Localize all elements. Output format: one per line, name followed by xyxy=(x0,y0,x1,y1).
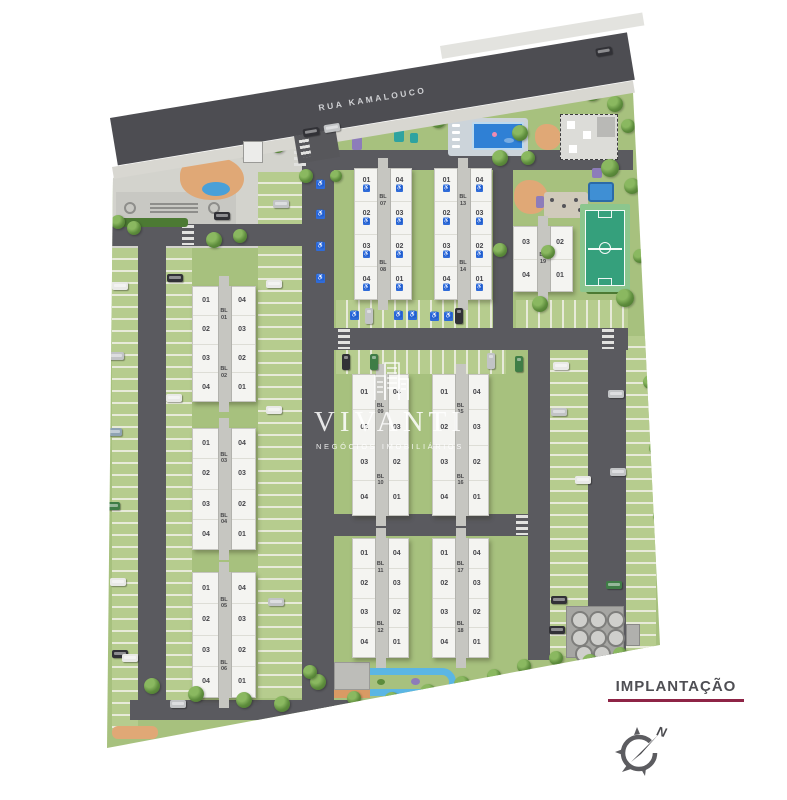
block-label: BL 10 xyxy=(373,474,389,488)
unit-number: 02 xyxy=(556,239,564,246)
car-icon xyxy=(268,598,284,606)
unit-number: 01 xyxy=(556,272,564,279)
tree-icon xyxy=(644,292,660,308)
car-icon xyxy=(108,352,124,360)
car-icon xyxy=(266,280,282,288)
tree-icon xyxy=(144,678,160,694)
unit-number: 03 xyxy=(202,647,210,654)
unit-number: 04 xyxy=(238,440,246,447)
building-entry-path xyxy=(456,658,466,668)
unit-number: 03 xyxy=(396,210,404,217)
block-label: BL 14 xyxy=(455,260,471,274)
building-block: 0102030404030201BL 11BL 12 xyxy=(352,538,409,658)
tree-icon xyxy=(274,696,290,712)
unit-number: 02 xyxy=(202,470,210,477)
building-entry-path xyxy=(376,516,386,526)
building-block: 01♿02♿03♿04♿04♿03♿02♿01♿BL 13BL 14 xyxy=(434,168,492,300)
unit-number: 02 xyxy=(440,424,448,431)
car-windshield xyxy=(114,284,126,287)
building-entry-path xyxy=(219,562,229,572)
car-icon xyxy=(487,353,495,369)
unit-number: 01 xyxy=(473,639,481,646)
unit-cell: 01♿ xyxy=(468,267,491,299)
unit-number: 02 xyxy=(238,501,246,508)
unit-number: 02 xyxy=(363,210,371,217)
building-strip-right: 04030201 xyxy=(228,428,256,550)
unit-number: 02 xyxy=(360,424,368,431)
unit-number: 03 xyxy=(473,580,481,587)
tree-icon xyxy=(621,119,635,133)
car-windshield xyxy=(110,354,122,357)
car-icon xyxy=(170,700,186,708)
block-label: BL 08 xyxy=(375,260,391,274)
tree-icon xyxy=(233,229,247,243)
tree-icon xyxy=(420,684,436,700)
tree-icon xyxy=(188,686,204,702)
accessibility-icon: ♿ xyxy=(476,284,483,291)
car-windshield xyxy=(112,580,124,583)
unit-number: 03 xyxy=(440,609,448,616)
building-block: 03040201BL 19 xyxy=(513,226,573,292)
unit-cell: 03♿ xyxy=(468,202,491,235)
unit-number: 03 xyxy=(238,470,246,477)
unit-number: 03 xyxy=(393,424,401,431)
unit-number: 04 xyxy=(238,297,246,304)
unit-cell: 01♿ xyxy=(388,267,411,299)
tree-icon xyxy=(521,151,535,165)
unit-cell: 04♿ xyxy=(388,169,411,202)
unit-cell: 02♿ xyxy=(468,235,491,268)
building-entry-path xyxy=(219,698,229,708)
building-entry-path xyxy=(219,418,229,428)
unit-number: 04 xyxy=(360,639,368,646)
building-block: 0102030404030201BL 03BL 04 xyxy=(192,428,256,550)
unit-number: 04 xyxy=(473,389,481,396)
unit-number: 04 xyxy=(202,531,210,538)
building-block: 01♿02♿03♿04♿04♿03♿02♿01♿BL 07BL 08 xyxy=(354,168,412,300)
building-strip-left: 01020304 xyxy=(192,428,220,550)
legend: IMPLANTAÇÃO xyxy=(608,678,744,702)
block-label: BL 13 xyxy=(455,194,471,208)
unit-number: 01 xyxy=(440,550,448,557)
building-strip-left: 01020304 xyxy=(432,538,457,658)
tree-icon xyxy=(532,296,548,312)
compass-icon: N xyxy=(612,722,670,780)
unit-number: 01 xyxy=(363,177,371,184)
accessible-parking-icon: ♿ xyxy=(350,311,359,320)
car-windshield xyxy=(555,364,567,367)
car-windshield xyxy=(344,356,348,359)
unit-cell: 02 xyxy=(229,345,255,374)
building-strip-right: 04030201 xyxy=(228,572,256,698)
car-icon xyxy=(266,406,282,414)
car-icon xyxy=(104,502,120,510)
unit-number: 04 xyxy=(202,678,210,685)
unit-number: 01 xyxy=(396,276,404,283)
tree-icon xyxy=(303,665,317,679)
block-label: BL 17 xyxy=(453,561,469,575)
building-core xyxy=(375,538,389,658)
tree-icon xyxy=(582,654,598,670)
accessibility-icon: ♿ xyxy=(363,284,370,291)
unit-number: 02 xyxy=(473,609,481,616)
unit-number: 01 xyxy=(360,389,368,396)
block-label: BL 16 xyxy=(453,474,469,488)
unit-cell: 03 xyxy=(466,569,489,599)
building-entry-path xyxy=(378,300,388,310)
car-icon xyxy=(606,581,622,589)
accessibility-icon: ♿ xyxy=(443,251,450,258)
car-windshield xyxy=(372,356,376,359)
tree-icon xyxy=(127,221,141,235)
unit-cell: 01 xyxy=(466,628,489,657)
car-windshield xyxy=(108,430,120,433)
unit-number: 01 xyxy=(476,276,484,283)
tree-icon xyxy=(487,669,501,683)
unit-cell: 03 xyxy=(229,604,255,635)
unit-number: 01 xyxy=(202,297,210,304)
car-icon xyxy=(365,308,373,324)
unit-number: 02 xyxy=(238,355,246,362)
accessibility-icon: ♿ xyxy=(396,218,403,225)
unit-cell: 02 xyxy=(229,636,255,667)
tree-icon xyxy=(640,214,656,230)
car-windshield xyxy=(612,470,624,473)
tree-icon xyxy=(111,215,125,229)
tree-icon xyxy=(454,676,470,692)
unit-number: 04 xyxy=(522,272,530,279)
unit-cell: 04 xyxy=(386,375,409,410)
car-icon xyxy=(166,394,182,402)
unit-cell: 03 xyxy=(466,410,489,445)
tree-icon xyxy=(512,125,528,141)
tree-icon xyxy=(549,651,563,665)
car-icon xyxy=(455,308,463,324)
tree-icon xyxy=(492,150,508,166)
building-entry-path xyxy=(376,658,386,668)
accessibility-icon: ♿ xyxy=(396,185,403,192)
accessibility-icon: ♿ xyxy=(396,284,403,291)
tree-icon xyxy=(616,289,634,307)
block-label: BL 12 xyxy=(373,621,389,635)
unit-number: 03 xyxy=(443,243,451,250)
tree-icon xyxy=(649,441,663,455)
car-windshield xyxy=(553,598,565,601)
building-strip-right: 04030201 xyxy=(228,286,256,402)
unit-number: 03 xyxy=(473,424,481,431)
gatehouse xyxy=(243,141,263,163)
unit-number: 03 xyxy=(360,459,368,466)
accessibility-icon: ♿ xyxy=(363,251,370,258)
accessibility-icon: ♿ xyxy=(443,185,450,192)
car-icon xyxy=(112,282,128,290)
accessibility-icon: ♿ xyxy=(443,284,450,291)
car-windshield xyxy=(551,628,563,631)
car-icon xyxy=(575,476,591,484)
car-icon xyxy=(610,468,626,476)
unit-cell: 01 xyxy=(386,481,409,515)
accessible-parking-icon: ♿ xyxy=(316,274,325,283)
unit-number: 04 xyxy=(202,384,210,391)
building-strip-left: 01020304 xyxy=(432,374,457,516)
accessibility-icon: ♿ xyxy=(476,185,483,192)
tree-icon xyxy=(299,169,313,183)
unit-number: 04 xyxy=(238,585,246,592)
car-icon xyxy=(106,428,122,436)
building-entry-path xyxy=(376,528,386,538)
unit-cell: 03 xyxy=(386,569,409,599)
building-block: 0102030404030201BL 09BL 10 xyxy=(352,374,409,516)
block-label: BL 05 xyxy=(216,597,232,611)
tree-icon xyxy=(624,178,640,194)
car-icon xyxy=(515,356,523,372)
unit-cell: 03 xyxy=(229,459,255,489)
car-icon xyxy=(551,596,567,604)
unit-cell: 02 xyxy=(466,446,489,481)
car-icon xyxy=(214,212,230,220)
car-windshield xyxy=(124,656,136,659)
unit-number: 01 xyxy=(393,494,401,501)
car-windshield xyxy=(270,600,282,603)
unit-number: 01 xyxy=(238,678,246,685)
accessible-parking-icon: ♿ xyxy=(316,210,325,219)
building-entry-path xyxy=(538,216,548,226)
unit-cell: 02 xyxy=(386,599,409,629)
tree-icon xyxy=(643,375,657,389)
unit-cell: 01 xyxy=(466,481,489,515)
street-name-label: RUA KAMALOUCO xyxy=(318,85,427,113)
unit-number: 01 xyxy=(473,494,481,501)
tree-icon xyxy=(517,659,531,673)
building-block: 0102030404030201BL 01BL 02 xyxy=(192,286,256,402)
unit-number: 04 xyxy=(473,550,481,557)
accessible-parking-icon: ♿ xyxy=(444,312,453,321)
car-windshield xyxy=(169,276,181,279)
car-icon xyxy=(553,362,569,370)
tree-icon xyxy=(384,692,400,708)
tree-icon xyxy=(493,243,507,257)
car-windshield xyxy=(275,202,287,205)
car-windshield xyxy=(577,478,589,481)
unit-cell: 01 xyxy=(229,520,255,549)
accessible-parking-icon: ♿ xyxy=(316,242,325,251)
accessibility-icon: ♿ xyxy=(476,251,483,258)
unit-number: 03 xyxy=(238,326,246,333)
unit-number: 02 xyxy=(393,459,401,466)
building-strip-left: 01020304 xyxy=(192,286,220,402)
unit-number: 04 xyxy=(396,177,404,184)
building-strip-left: 01♿02♿03♿04♿ xyxy=(354,168,379,300)
building-entry-path xyxy=(456,528,466,538)
car-icon xyxy=(608,390,624,398)
block-label: BL 02 xyxy=(216,366,232,380)
unit-cell: 02 xyxy=(386,446,409,481)
building-strip-left: 01020304 xyxy=(352,374,377,516)
unit-number: 04 xyxy=(443,276,451,283)
unit-number: 02 xyxy=(202,326,210,333)
building-entry-path xyxy=(456,516,466,526)
unit-cell: 04 xyxy=(466,375,489,410)
unit-number: 02 xyxy=(202,616,210,623)
tree-icon xyxy=(347,691,361,705)
unit-number: 03 xyxy=(360,609,368,616)
site-plan-canvas: 0102030404030201BL 01BL 0201020304040302… xyxy=(0,0,787,800)
tree-icon xyxy=(613,647,627,661)
building-entry-path xyxy=(458,158,468,168)
unit-cell: 02 xyxy=(466,599,489,629)
accessible-parking-icon: ♿ xyxy=(316,180,325,189)
unit-number: 03 xyxy=(202,501,210,508)
accessible-parking-icon: ♿ xyxy=(430,312,439,321)
unit-number: 03 xyxy=(440,459,448,466)
legend-underline xyxy=(608,699,744,702)
unit-number: 04 xyxy=(363,276,371,283)
tree-icon xyxy=(601,159,619,177)
accessibility-icon: ♿ xyxy=(363,185,370,192)
building-strip-left: 01020304 xyxy=(192,572,220,698)
unit-number: 02 xyxy=(360,580,368,587)
unit-cell: 04 xyxy=(466,539,489,569)
unit-cell: 02 xyxy=(229,490,255,520)
building-block: 0102030404030201BL 05BL 06 xyxy=(192,572,256,698)
unit-number: 02 xyxy=(393,609,401,616)
block-label: BL 09 xyxy=(373,403,389,417)
accessibility-icon: ♿ xyxy=(396,251,403,258)
accessible-parking-icon: ♿ xyxy=(394,311,403,320)
car-icon xyxy=(370,354,378,370)
unit-number: 01 xyxy=(202,585,210,592)
unit-cell: 01 xyxy=(548,260,572,292)
car-icon xyxy=(342,354,350,370)
legend-title: IMPLANTAÇÃO xyxy=(608,678,744,695)
unit-cell: 01 xyxy=(386,628,409,657)
block-label: BL 04 xyxy=(216,513,232,527)
building-core xyxy=(377,168,391,300)
unit-number: 04 xyxy=(393,389,401,396)
car-windshield xyxy=(489,355,493,358)
unit-number: 02 xyxy=(238,647,246,654)
building-core xyxy=(455,538,469,658)
unit-number: 02 xyxy=(473,459,481,466)
car-windshield xyxy=(610,392,622,395)
accessibility-icon: ♿ xyxy=(443,218,450,225)
car-windshield xyxy=(517,358,521,361)
car-icon xyxy=(167,274,183,282)
building-core xyxy=(375,374,389,516)
unit-number: 01 xyxy=(238,531,246,538)
car-windshield xyxy=(608,583,620,586)
building-core xyxy=(218,286,232,402)
unit-cell: 04 xyxy=(229,429,255,459)
unit-number: 03 xyxy=(522,239,530,246)
accessible-parking-icon: ♿ xyxy=(408,311,417,320)
unit-number: 01 xyxy=(360,550,368,557)
building-core xyxy=(218,572,232,698)
car-windshield xyxy=(457,310,461,313)
block-label: BL 01 xyxy=(216,308,232,322)
unit-number: 02 xyxy=(396,243,404,250)
unit-number: 01 xyxy=(393,639,401,646)
unit-number: 03 xyxy=(393,580,401,587)
car-icon xyxy=(110,578,126,586)
unit-number: 04 xyxy=(440,494,448,501)
unit-number: 01 xyxy=(202,440,210,447)
building-entry-path xyxy=(219,402,229,412)
tree-icon xyxy=(330,170,342,182)
building-strip-left: 01♿02♿03♿04♿ xyxy=(434,168,459,300)
building-core xyxy=(455,374,469,516)
unit-cell: 04 xyxy=(386,539,409,569)
car-windshield xyxy=(598,49,610,54)
unit-number: 01 xyxy=(440,389,448,396)
building-block: 0102030404030201BL 15BL 16 xyxy=(432,374,489,516)
accessibility-icon: ♿ xyxy=(363,218,370,225)
unit-cell: 03 xyxy=(386,410,409,445)
car-icon xyxy=(551,408,567,416)
unit-number: 03 xyxy=(363,243,371,250)
block-label: BL 03 xyxy=(216,452,232,466)
unit-cell: 03 xyxy=(229,316,255,345)
car-windshield xyxy=(172,702,184,705)
building-strip-left: 01020304 xyxy=(352,538,377,658)
car-windshield xyxy=(168,396,180,399)
tree-icon xyxy=(653,509,667,523)
crosswalk xyxy=(299,139,312,158)
block-label: BL 07 xyxy=(375,194,391,208)
unit-cell: 04 xyxy=(229,287,255,316)
unit-number: 04 xyxy=(440,639,448,646)
block-label: BL 06 xyxy=(216,660,232,674)
unit-number: 02 xyxy=(476,243,484,250)
car-windshield xyxy=(268,282,280,285)
block-label: BL 18 xyxy=(453,621,469,635)
building-entry-path xyxy=(378,158,388,168)
block-label: BL 15 xyxy=(453,403,469,417)
tree-icon xyxy=(236,692,252,708)
unit-number: 02 xyxy=(443,210,451,217)
tree-icon xyxy=(541,245,555,259)
car-icon xyxy=(122,654,138,662)
unit-number: 02 xyxy=(440,580,448,587)
unit-cell: 03♿ xyxy=(388,202,411,235)
unit-cell: 01 xyxy=(229,373,255,401)
unit-number: 03 xyxy=(476,210,484,217)
unit-number: 01 xyxy=(238,384,246,391)
unit-number: 04 xyxy=(393,550,401,557)
car-icon xyxy=(549,626,565,634)
car-icon xyxy=(273,200,289,208)
car-windshield xyxy=(268,408,280,411)
building-entry-path xyxy=(219,550,229,560)
car-windshield xyxy=(216,214,228,217)
block-label: BL 11 xyxy=(373,561,389,575)
unit-cell: 04 xyxy=(229,573,255,604)
building-entry-path xyxy=(456,364,466,374)
building-core xyxy=(457,168,471,300)
accessibility-icon: ♿ xyxy=(476,218,483,225)
tree-icon xyxy=(607,96,623,112)
unit-number: 01 xyxy=(443,177,451,184)
building-block: 0102030404030201BL 17BL 18 xyxy=(432,538,489,658)
car-windshield xyxy=(106,504,118,507)
tree-icon xyxy=(633,249,647,263)
tree-icon xyxy=(206,232,222,248)
unit-number: 04 xyxy=(360,494,368,501)
unit-cell: 02♿ xyxy=(388,235,411,268)
building-core xyxy=(218,428,232,550)
car-windshield xyxy=(367,310,371,313)
unit-number: 03 xyxy=(238,616,246,623)
